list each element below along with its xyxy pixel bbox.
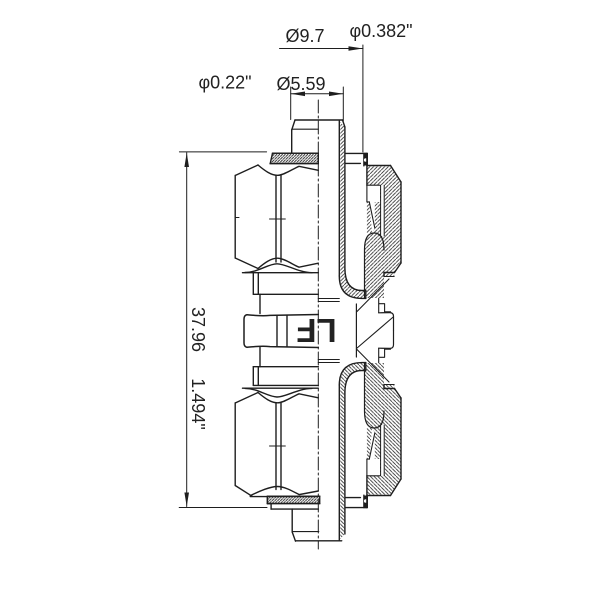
svg-text:Ø5.59: Ø5.59: [276, 74, 325, 94]
svg-text:1.494": 1.494": [188, 378, 208, 429]
svg-text:φ0.22": φ0.22": [198, 73, 251, 93]
svg-text:φ0.382": φ0.382": [349, 21, 412, 41]
svg-text:Ø9.7: Ø9.7: [285, 26, 324, 46]
svg-text:LF: LF: [296, 312, 336, 349]
svg-text:37.96: 37.96: [188, 307, 208, 352]
